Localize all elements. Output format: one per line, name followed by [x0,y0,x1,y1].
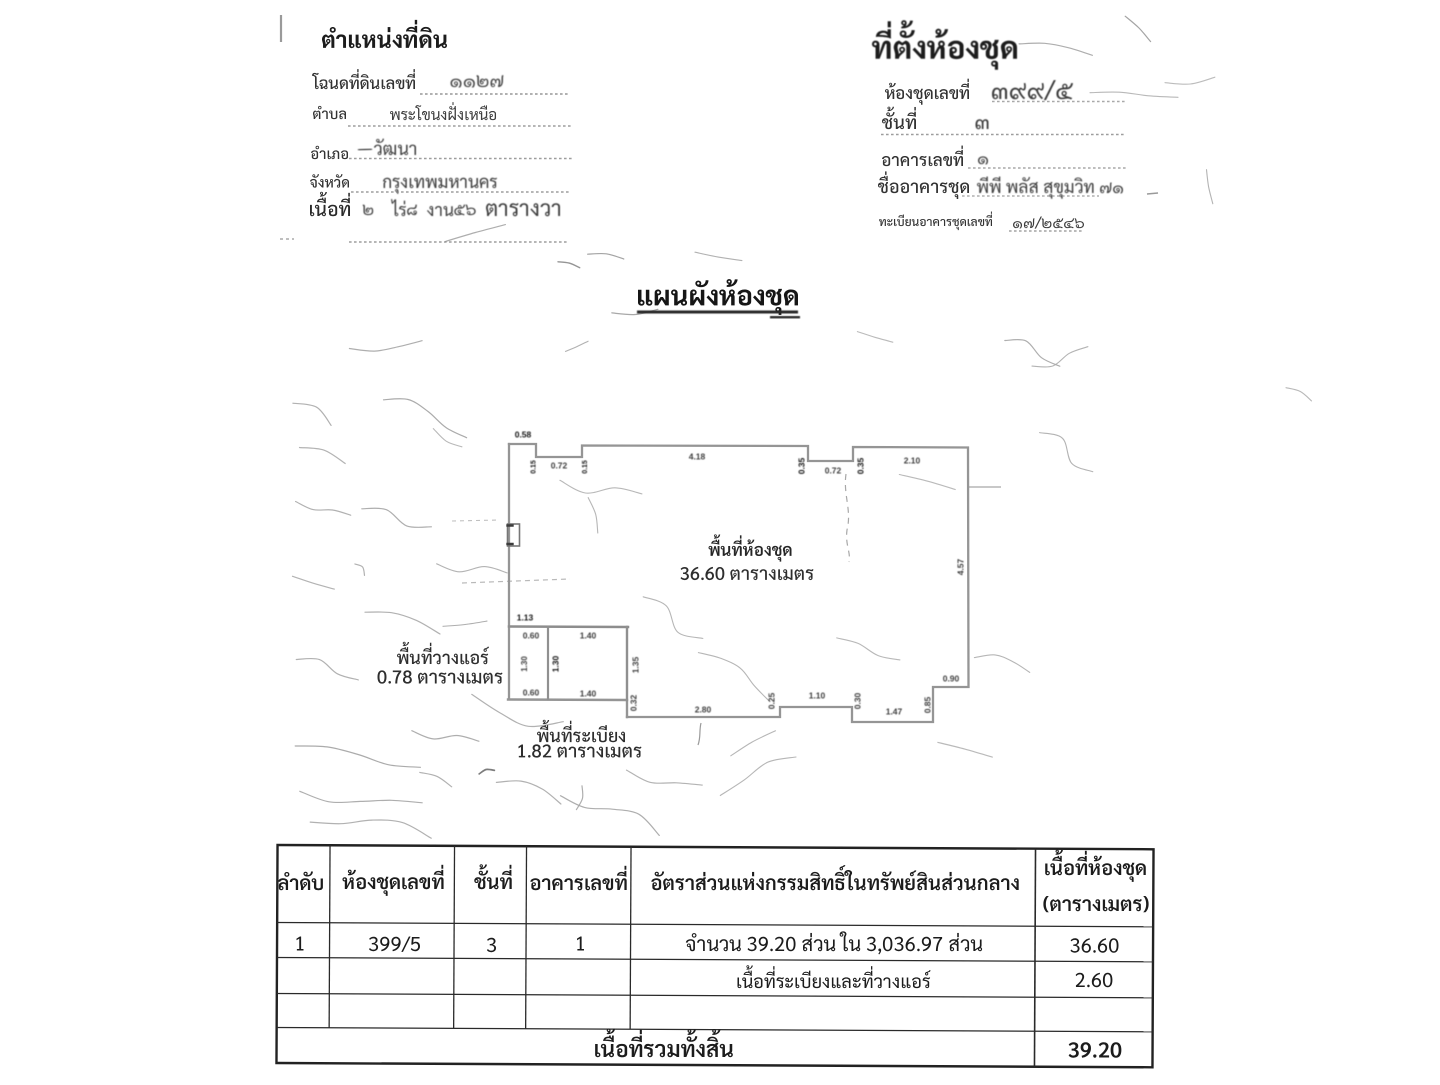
svg-text:2.80: 2.80 [695,704,712,714]
svg-text:0.60: 0.60 [523,630,540,640]
svg-text:1.35: 1.35 [630,656,640,673]
svg-text:1.30: 1.30 [550,655,560,672]
svg-text:0.15: 0.15 [582,460,589,474]
svg-text:2.10: 2.10 [904,455,921,465]
svg-text:1.40: 1.40 [580,630,597,640]
svg-text:0.25: 0.25 [766,692,776,709]
svg-text:0.72: 0.72 [551,460,568,470]
svg-text:0.72: 0.72 [825,465,842,475]
svg-text:0.15: 0.15 [530,460,537,474]
svg-text:1.30: 1.30 [520,656,529,672]
svg-text:4.18: 4.18 [689,451,706,461]
svg-text:1.47: 1.47 [886,706,903,716]
svg-text:0.60: 0.60 [523,687,540,697]
svg-text:0.35: 0.35 [855,457,865,474]
svg-text:1.13: 1.13 [517,612,534,622]
svg-text:0.35: 0.35 [796,457,806,474]
svg-text:4.57: 4.57 [955,558,965,575]
svg-text:0.32: 0.32 [628,694,638,711]
svg-text:0.58: 0.58 [515,429,532,439]
svg-text:0.85: 0.85 [922,696,932,713]
svg-text:1.40: 1.40 [580,688,597,698]
svg-text:1.10: 1.10 [809,690,826,700]
svg-text:0.90: 0.90 [943,673,960,683]
svg-text:0.30: 0.30 [852,692,862,709]
